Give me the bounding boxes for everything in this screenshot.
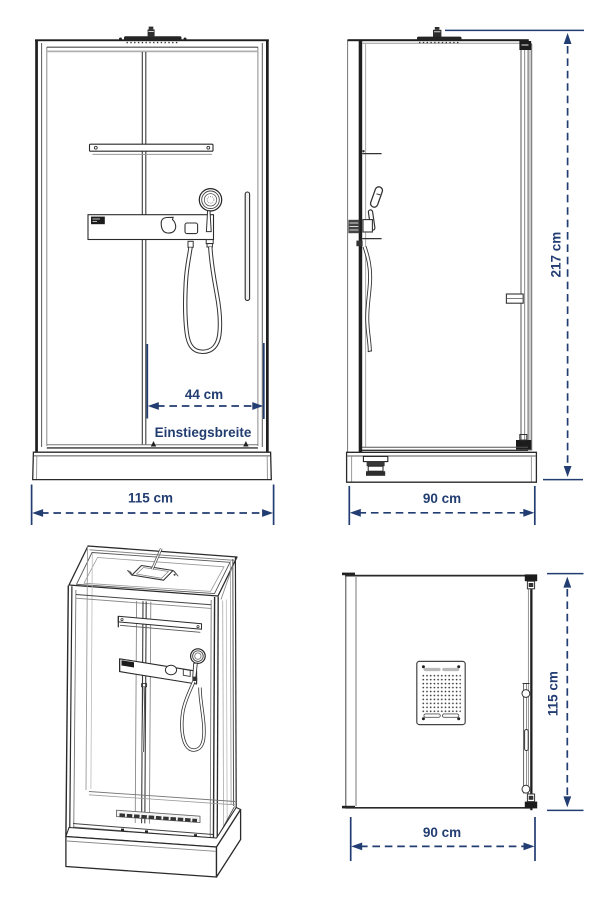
svg-text:Einstiegsbreite: Einstiegsbreite xyxy=(155,425,252,440)
svg-text:90 cm: 90 cm xyxy=(423,825,461,840)
svg-text:115 cm: 115 cm xyxy=(546,671,561,716)
svg-text:217 cm: 217 cm xyxy=(549,232,564,278)
svg-text:115 cm: 115 cm xyxy=(128,491,173,506)
svg-text:44 cm: 44 cm xyxy=(185,387,223,402)
svg-text:90 cm: 90 cm xyxy=(423,491,461,506)
